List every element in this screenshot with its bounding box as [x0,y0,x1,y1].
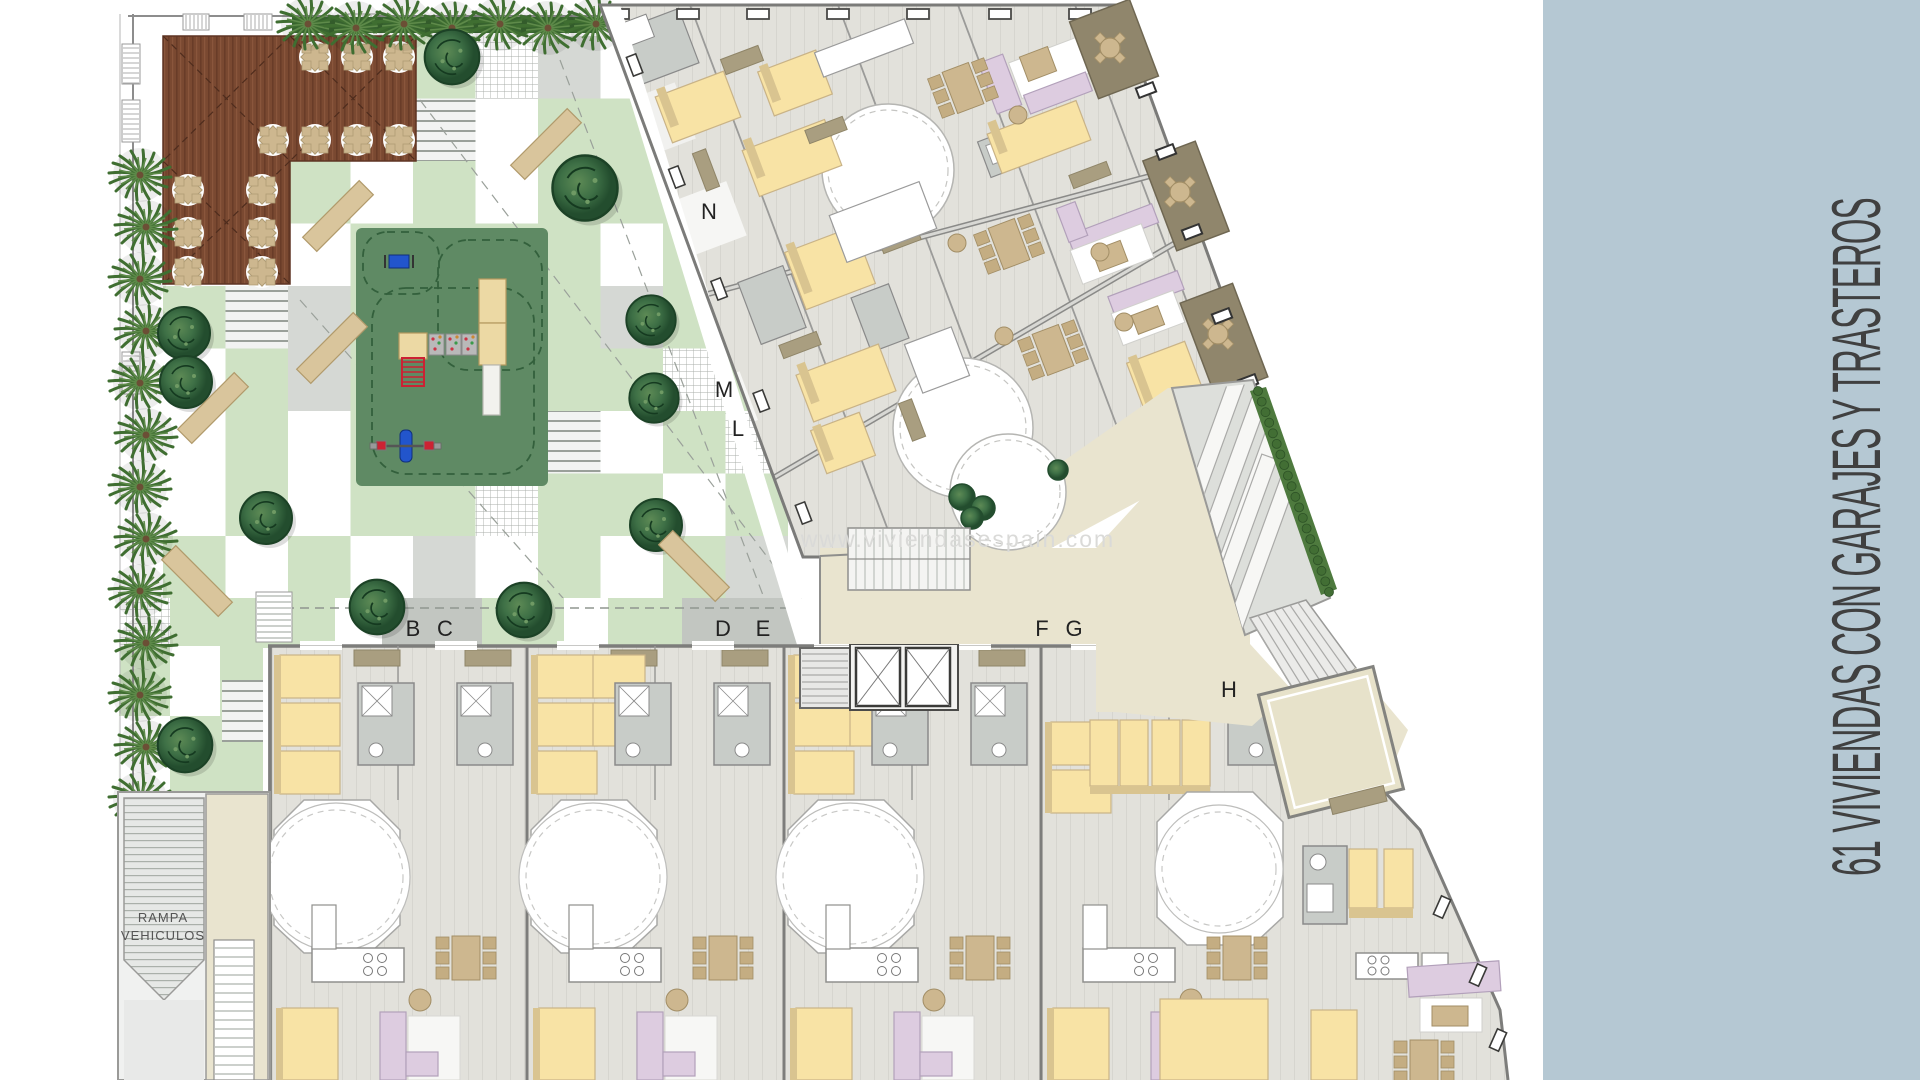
svg-text:B: B [406,616,421,641]
svg-text:www.viviendasespain.com: www.viviendasespain.com [800,526,1115,552]
svg-text:H: H [1221,677,1237,702]
svg-text:RAMPA: RAMPA [138,910,188,925]
svg-text:G: G [1065,616,1082,641]
svg-text:L: L [732,416,744,441]
svg-text:C: C [437,616,453,641]
svg-text:VEHICULOS: VEHICULOS [121,928,205,943]
svg-text:N: N [701,199,717,224]
svg-text:E: E [756,616,771,641]
svg-text:61 VIVIENDAS CON GARAJES Y TRA: 61 VIVIENDAS CON GARAJES Y TRASTEROS [1819,197,1895,876]
svg-text:F: F [1035,616,1048,641]
svg-text:M: M [715,377,733,402]
svg-text:D: D [715,616,731,641]
